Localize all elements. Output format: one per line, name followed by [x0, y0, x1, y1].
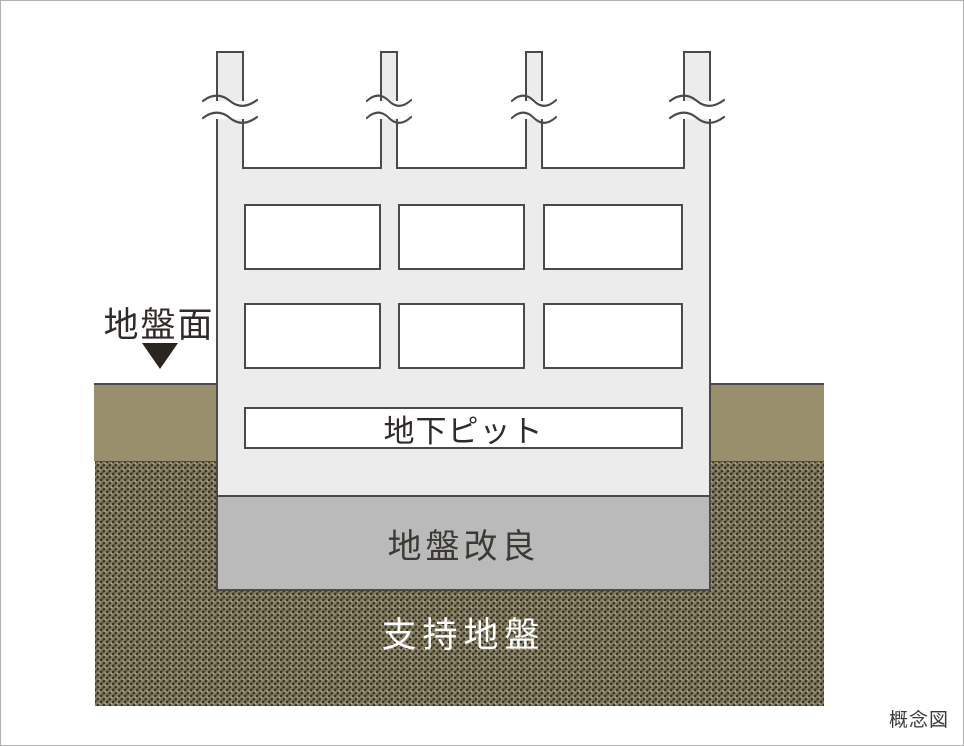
break-mark-icon [511, 93, 557, 107]
bearing-stratum-label: 支持地盤 [216, 614, 711, 658]
ground-improvement-label: 地盤改良 [388, 519, 540, 568]
ground-improvement-block: 地盤改良 [216, 495, 711, 591]
window-opening [543, 204, 683, 270]
break-mark-icon [669, 110, 725, 124]
window-opening [543, 303, 683, 369]
break-mark-icon [366, 93, 412, 107]
window-opening [398, 303, 525, 369]
caption: 概念図 [889, 705, 949, 732]
window-opening [244, 204, 381, 270]
soil-band-left [94, 383, 216, 461]
underground-pit-label: 地下ピット [384, 406, 544, 451]
underground-pit-opening: 地下ピット [244, 407, 683, 449]
soil-band-right [711, 383, 824, 461]
diagram-canvas: 地盤改良 地下ピット 地盤面 支持地盤 概念図 [0, 0, 964, 746]
break-mark-icon [202, 110, 258, 124]
break-mark-icon [669, 93, 725, 107]
window-opening [244, 303, 381, 369]
window-opening [398, 204, 525, 270]
break-mark-icon [511, 110, 557, 124]
break-mark-icon [366, 110, 412, 124]
ground-surface-label: 地盤面 [94, 297, 224, 348]
ground-surface-marker-icon [142, 343, 178, 369]
break-mark-icon [202, 93, 258, 107]
